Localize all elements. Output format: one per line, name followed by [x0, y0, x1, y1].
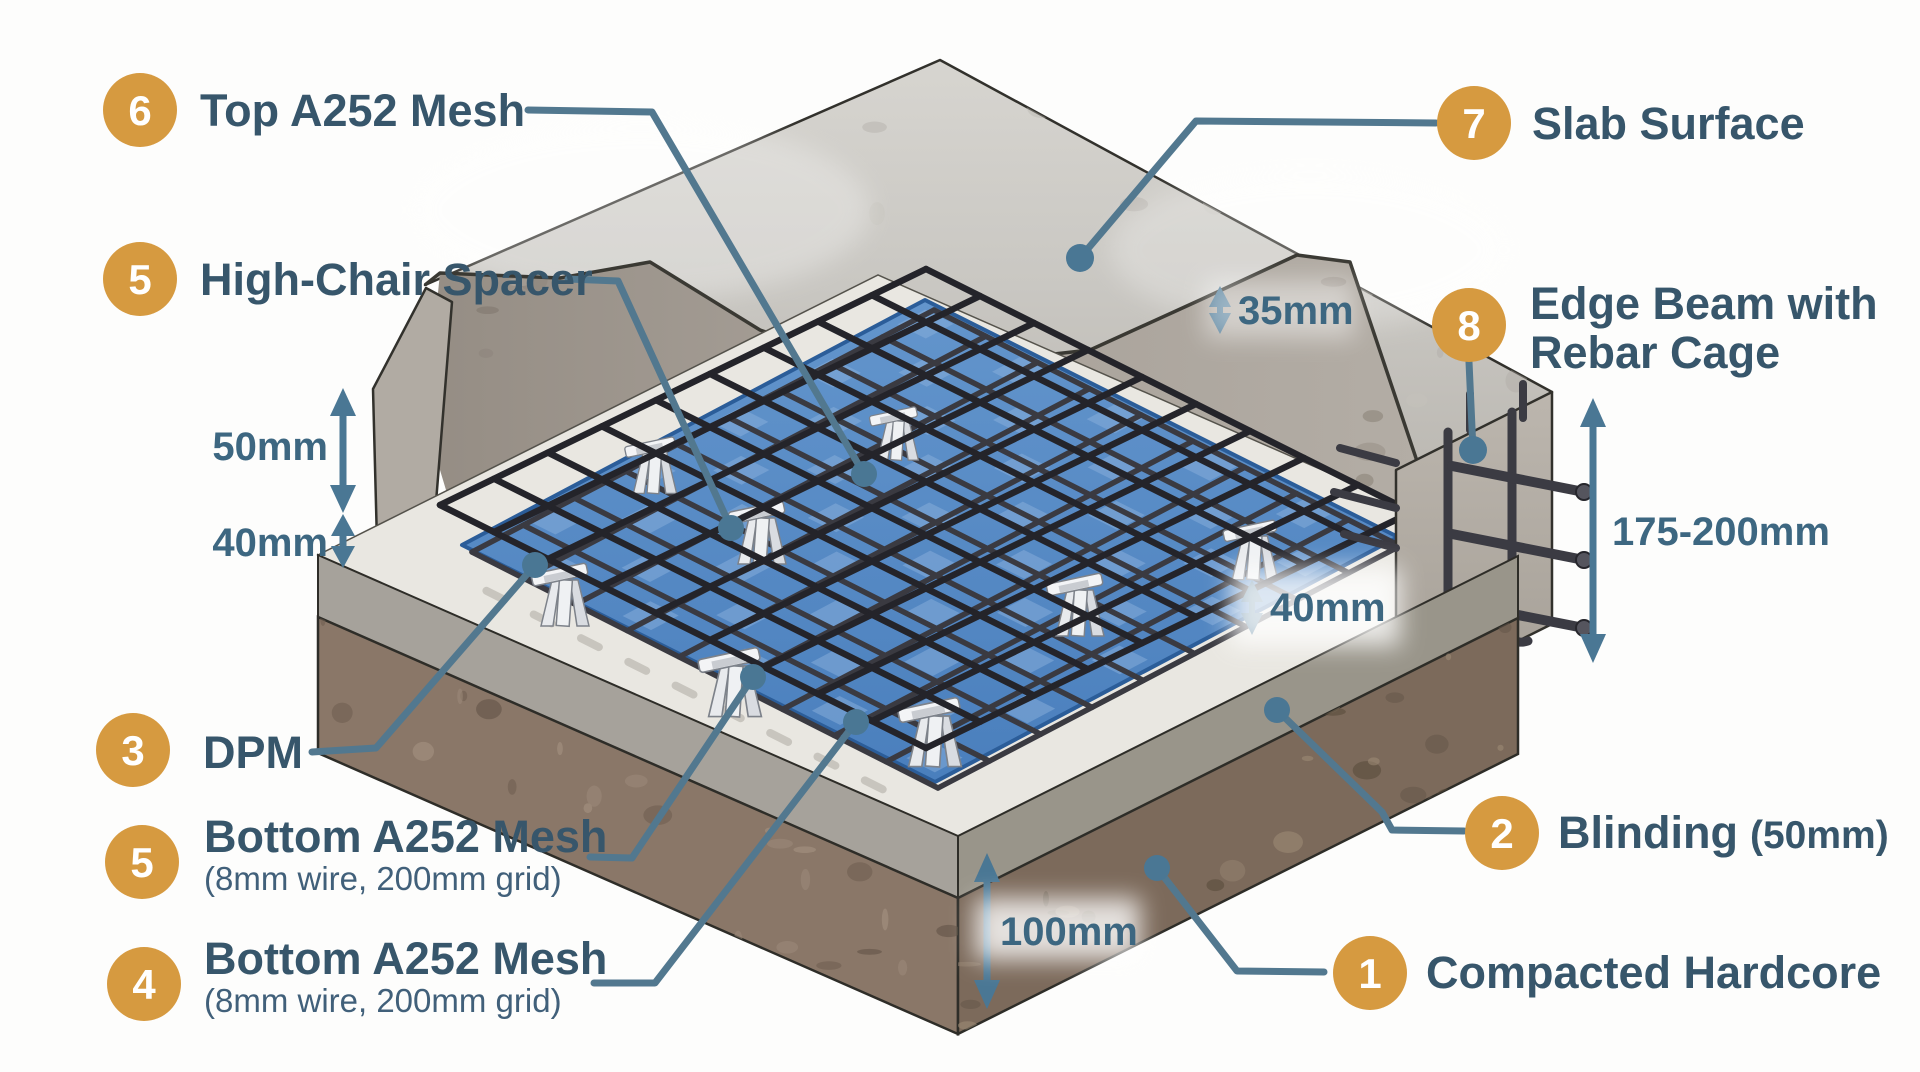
dim-text-40mm-left: 40mm — [212, 521, 328, 565]
badge-5b-number: 5 — [130, 839, 153, 886]
badge-8-number: 8 — [1457, 302, 1480, 349]
dim-text-100mm: 100mm — [1000, 910, 1138, 954]
label-high-chair: High-Chair Spacer — [200, 254, 593, 305]
label-bottom-mesh-upper: Bottom A252 Mesh — [204, 811, 607, 862]
badge-2-number: 2 — [1490, 810, 1513, 857]
leader-dot-bottom-mesh-lower — [843, 709, 869, 735]
label-blinding: Blinding — [1558, 807, 1738, 858]
leader-dot-bottom-mesh-upper — [740, 664, 766, 690]
dim-text-35mm: 35mm — [1238, 289, 1354, 333]
leader-dot-blinding — [1264, 697, 1290, 723]
badge-7-number: 7 — [1462, 100, 1485, 147]
slab-construction-diagram: 50mm 40mm 35mm 40mm 175-200mm 100mm 6 To… — [0, 0, 1920, 1072]
badge-4-number: 4 — [132, 961, 156, 1008]
leader-dot-slab-surface — [1066, 244, 1094, 272]
dim-text-50mm: 50mm — [212, 425, 328, 469]
badge-1-number: 1 — [1358, 950, 1381, 997]
callout-high-chair: 5 High-Chair Spacer — [103, 242, 593, 316]
label-dpm: DPM — [203, 727, 303, 778]
callout-bottom-mesh-lower: 4 Bottom A252 Mesh (8mm wire, 200mm grid… — [107, 933, 607, 1021]
label-bottom-mesh-lower: Bottom A252 Mesh — [204, 933, 607, 984]
leader-dot-top-mesh — [851, 461, 877, 487]
leader-dot-dpm — [522, 552, 548, 578]
callout-bottom-mesh-upper: 5 Bottom A252 Mesh (8mm wire, 200mm grid… — [105, 811, 607, 899]
label-top-mesh: Top A252 Mesh — [200, 85, 525, 136]
badge-3-number: 3 — [121, 727, 144, 774]
callout-blinding: 2 Blinding (50mm) — [1465, 796, 1889, 870]
callout-dpm: 3 DPM — [96, 713, 303, 787]
dimension-mesh-layer-gap — [330, 388, 356, 513]
label-hardcore: Compacted Hardcore — [1426, 947, 1881, 998]
label-blinding-size: (50mm) — [1750, 814, 1889, 857]
sublabel-bottom-mesh-lower: (8mm wire, 200mm grid) — [204, 982, 562, 1019]
label-edge-beam-2: Rebar Cage — [1530, 327, 1780, 378]
sublabel-bottom-mesh-upper: (8mm wire, 200mm grid) — [204, 860, 562, 897]
callout-top-mesh: 6 Top A252 Mesh — [103, 73, 525, 147]
dim-text-40mm-mid: 40mm — [1270, 586, 1386, 630]
callout-slab-surface: 7 Slab Surface — [1437, 86, 1805, 160]
leader-dot-hardcore — [1144, 855, 1170, 881]
label-slab-surface: Slab Surface — [1532, 98, 1805, 149]
badge-5-number: 5 — [128, 256, 151, 303]
leader-dot-high-chair — [718, 515, 744, 541]
callout-hardcore: 1 Compacted Hardcore — [1333, 936, 1881, 1010]
dim-text-beam-depth: 175-200mm — [1612, 510, 1830, 554]
badge-6-number: 6 — [128, 87, 151, 134]
diagram-canvas: 50mm 40mm 35mm 40mm 175-200mm 100mm 6 To… — [0, 0, 1920, 1072]
leader-dot-edge-beam — [1459, 436, 1487, 464]
label-edge-beam-1: Edge Beam with — [1530, 278, 1878, 329]
